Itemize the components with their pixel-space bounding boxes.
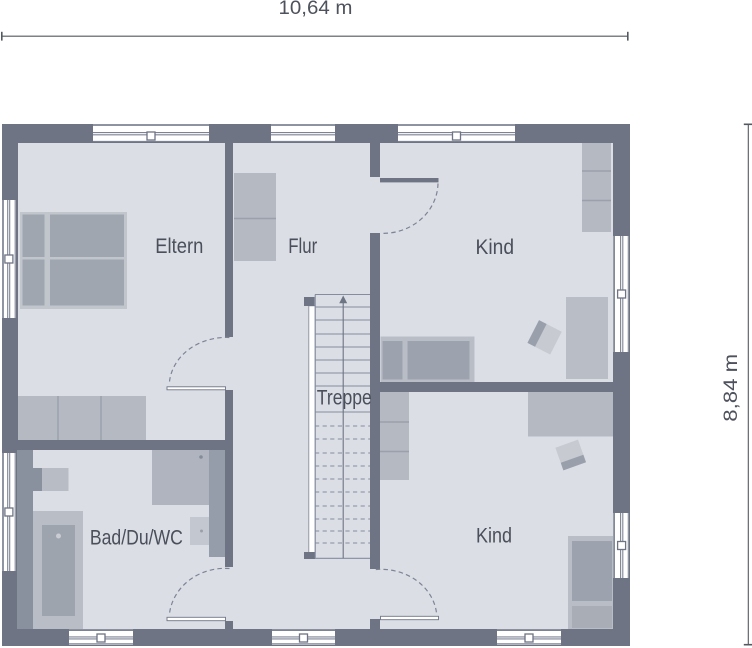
svg-text:Flur: Flur [288,234,317,258]
svg-text:Kind: Kind [476,524,512,548]
svg-text:Kind: Kind [476,235,515,259]
svg-text:Eltern: Eltern [155,234,203,258]
svg-text:8,84 m: 8,84 m [721,354,742,422]
svg-text:10,64 m: 10,64 m [279,0,353,19]
svg-text:Treppe: Treppe [317,386,372,410]
svg-text:Bad/Du/WC: Bad/Du/WC [90,526,183,550]
